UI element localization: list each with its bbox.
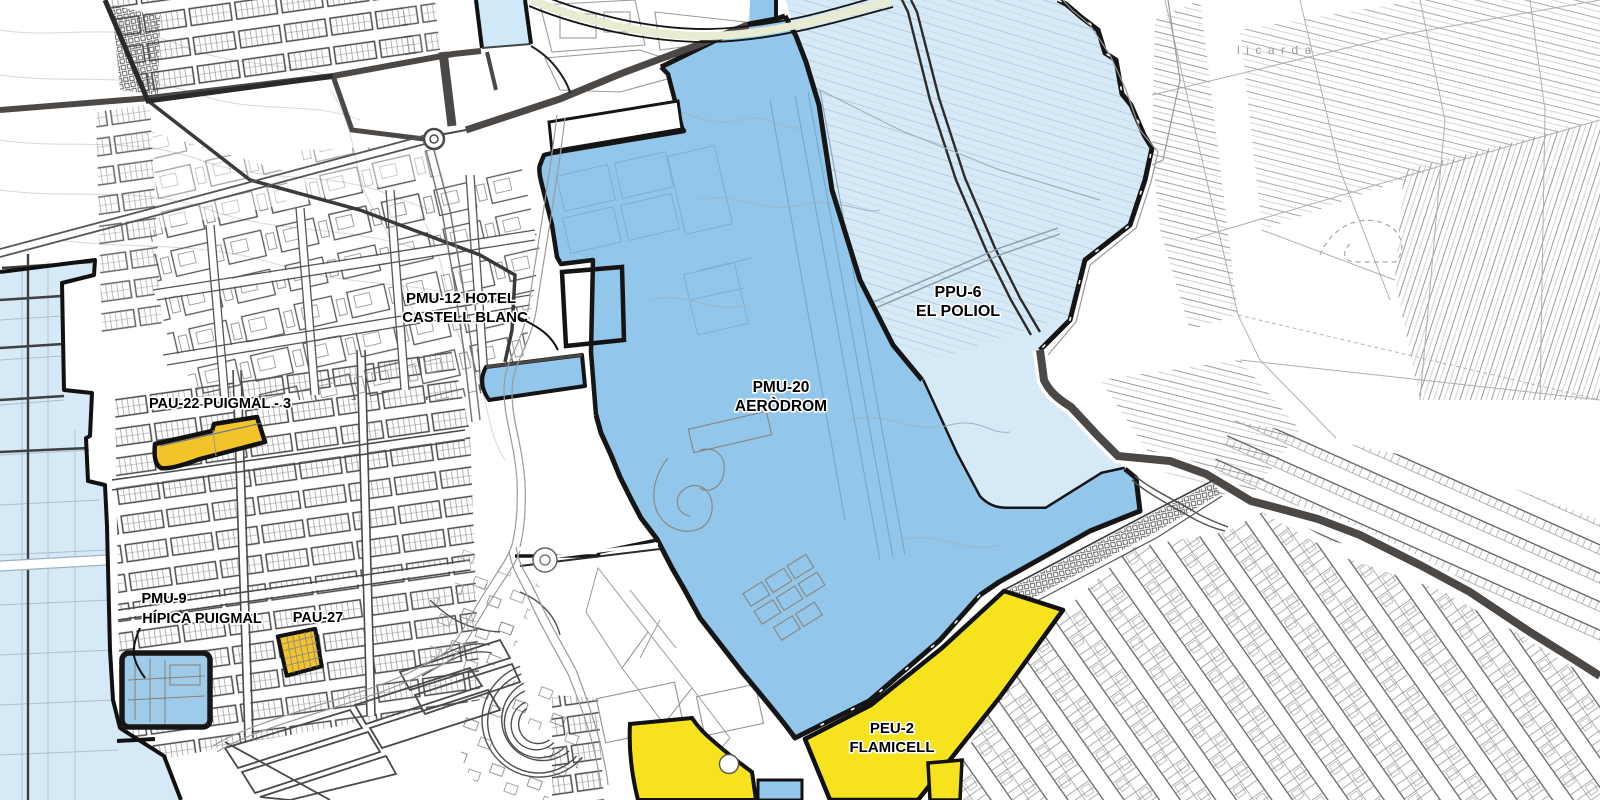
svg-text:PAU-27: PAU-27 bbox=[293, 610, 344, 626]
svg-text:AERÒDROM: AERÒDROM bbox=[735, 397, 827, 415]
svg-text:PMU-9: PMU-9 bbox=[141, 591, 186, 607]
svg-text:licarda: licarda bbox=[1237, 43, 1318, 57]
svg-text:PEU-2: PEU-2 bbox=[870, 720, 914, 737]
svg-text:PPU-6: PPU-6 bbox=[934, 284, 981, 301]
svg-text:PMU-20: PMU-20 bbox=[753, 379, 810, 396]
svg-text:CASTELL BLANC: CASTELL BLANC bbox=[402, 309, 528, 326]
svg-text:PAU-22 PUIGMAL - 3: PAU-22 PUIGMAL - 3 bbox=[149, 396, 291, 412]
svg-text:HÍPICA PUIGMAL: HÍPICA PUIGMAL bbox=[142, 610, 262, 627]
svg-text:FLAMICELL: FLAMICELL bbox=[850, 739, 935, 756]
svg-text:PMU-12 HOTEL: PMU-12 HOTEL bbox=[406, 290, 516, 307]
svg-text:EL POLIOL: EL POLIOL bbox=[916, 303, 1000, 320]
